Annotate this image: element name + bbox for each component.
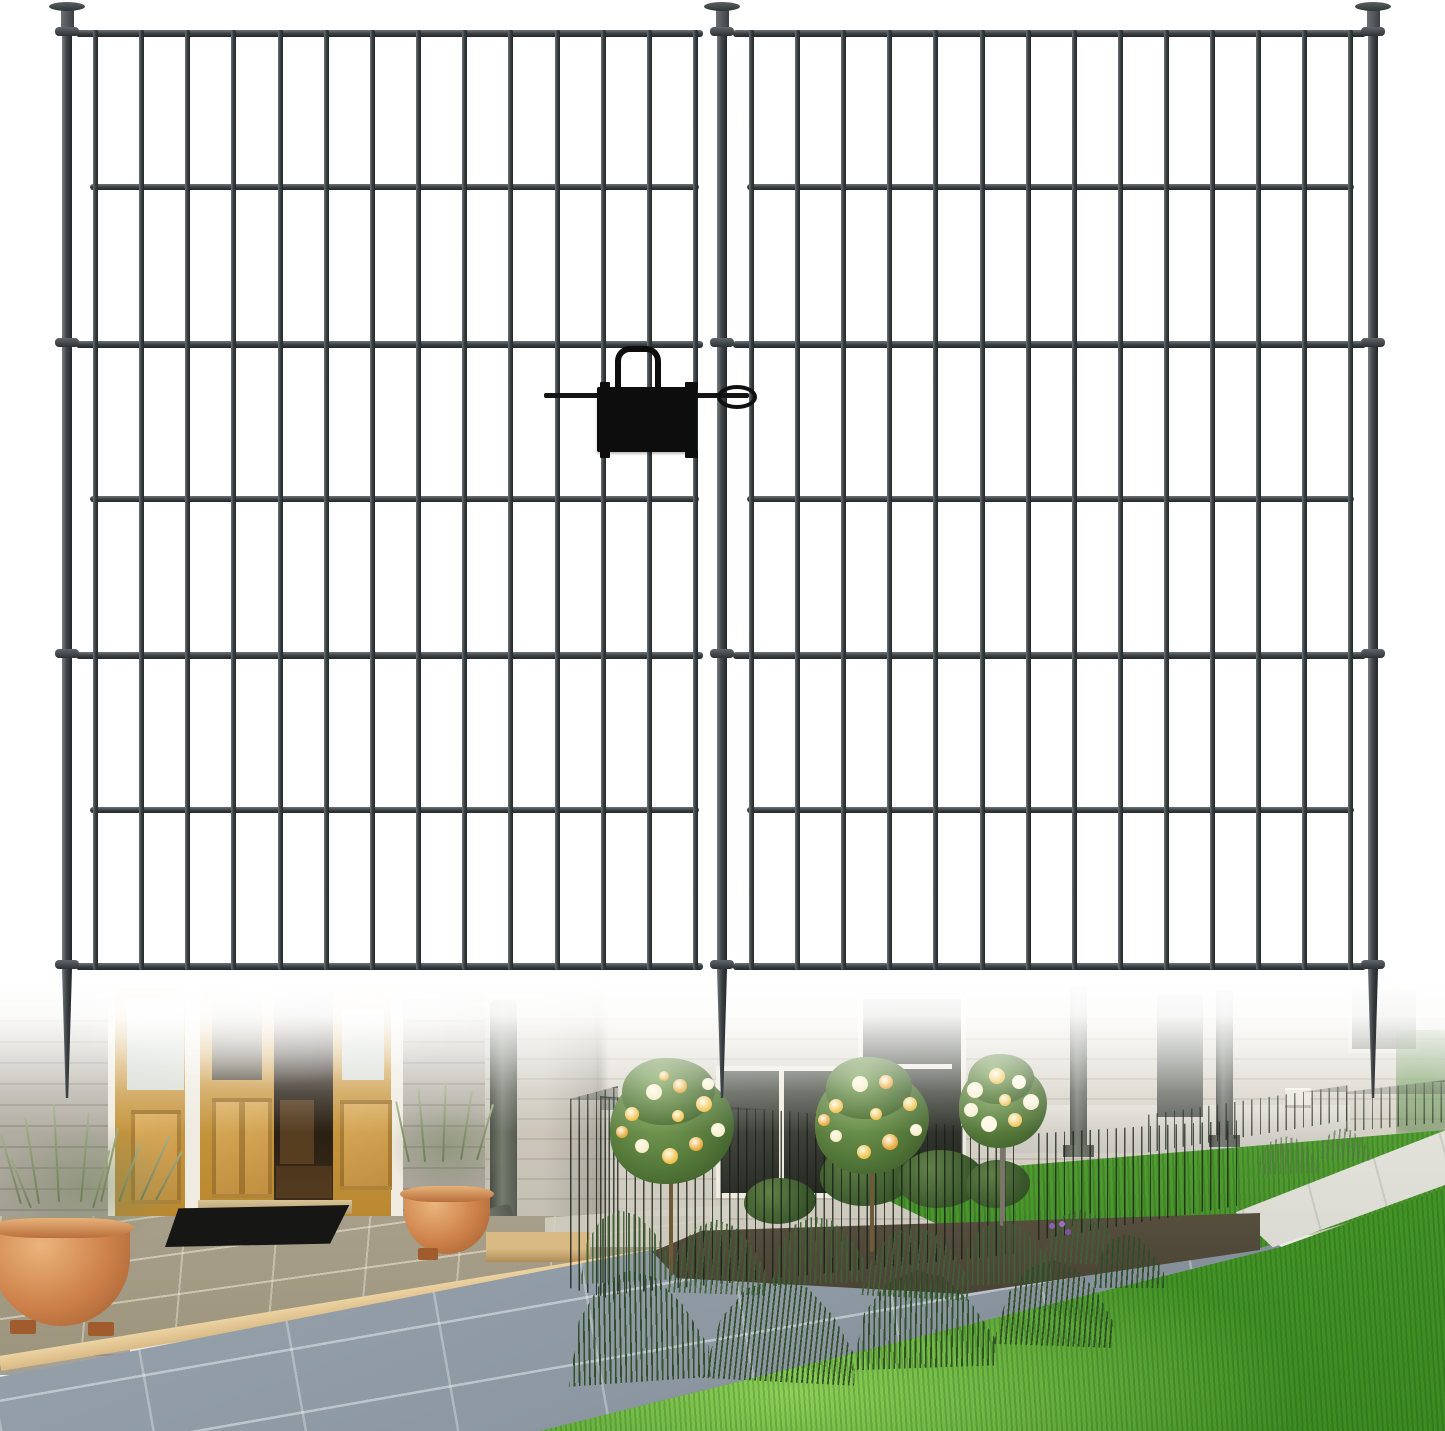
fence-rail-long <box>76 963 703 970</box>
fence-bar <box>1302 30 1307 970</box>
fence-bar <box>749 30 754 970</box>
fence-rail-short <box>90 496 699 502</box>
stake-spike <box>717 969 727 1098</box>
fence-bar <box>1210 30 1215 970</box>
stake-collar <box>1361 649 1385 658</box>
stake-collar <box>710 27 734 36</box>
latch-eyelet <box>717 385 757 409</box>
stake-spike <box>62 969 72 1098</box>
stake-collar <box>55 27 79 36</box>
latch-tab <box>685 450 698 458</box>
fence-bar <box>1026 30 1031 970</box>
fence-bar <box>601 30 606 970</box>
latch-handle-loop <box>615 346 661 400</box>
fence-rail-long <box>76 652 703 659</box>
stake-collar <box>55 338 79 347</box>
fence-layer <box>0 0 1445 1431</box>
fence-rail-short <box>747 496 1354 502</box>
fence-rail-short <box>747 807 1354 813</box>
fence-stake <box>717 8 727 969</box>
latch-tab <box>685 382 698 390</box>
fence-bar <box>693 30 698 970</box>
stake-collar <box>55 649 79 658</box>
fence-rail-long <box>76 30 703 37</box>
fence-rail-long <box>733 652 1366 659</box>
stake-collar <box>710 338 734 347</box>
stake-collar <box>710 960 734 969</box>
fence-bar <box>647 30 652 970</box>
latch-tab <box>600 450 610 458</box>
fence-bar <box>555 30 560 970</box>
fence-bar <box>93 30 98 970</box>
stake-collar <box>1361 960 1385 969</box>
fence-bar <box>980 30 985 970</box>
stake-cap <box>1355 2 1391 11</box>
fence-bar <box>1118 30 1123 970</box>
fence-bar <box>795 30 800 970</box>
fence-bar <box>1164 30 1169 970</box>
fence-stake <box>62 8 72 969</box>
fence-bar <box>1348 30 1353 970</box>
fence-rail-long <box>733 963 1366 970</box>
fence-rail-short <box>90 184 699 190</box>
fence-bar <box>933 30 938 970</box>
stake-collar <box>55 960 79 969</box>
fence-bar <box>185 30 190 970</box>
fence-bar <box>841 30 846 970</box>
product-image <box>0 0 1445 1431</box>
fence-stake <box>1368 8 1378 969</box>
fence-bar <box>1072 30 1077 970</box>
latch-tab <box>600 382 610 390</box>
stake-collar <box>1361 27 1385 36</box>
stake-collar <box>710 649 734 658</box>
fence-bar <box>887 30 892 970</box>
fence-bar <box>508 30 513 970</box>
fence-rail-long <box>733 341 1366 348</box>
fence-bar <box>1256 30 1261 970</box>
stake-spike <box>1368 969 1378 1098</box>
fence-bar <box>416 30 421 970</box>
stake-collar <box>1361 338 1385 347</box>
fence-bar <box>462 30 467 970</box>
fence-bar <box>324 30 329 970</box>
fence-rail-short <box>90 807 699 813</box>
fence-bar <box>370 30 375 970</box>
fence-rail-long <box>76 341 703 348</box>
stake-cap <box>49 2 85 11</box>
fence-rail-short <box>747 184 1354 190</box>
fence-bar <box>231 30 236 970</box>
fence-bar <box>278 30 283 970</box>
fence-bar <box>139 30 144 970</box>
fence-rail-long <box>733 30 1366 37</box>
stake-cap <box>704 2 740 11</box>
